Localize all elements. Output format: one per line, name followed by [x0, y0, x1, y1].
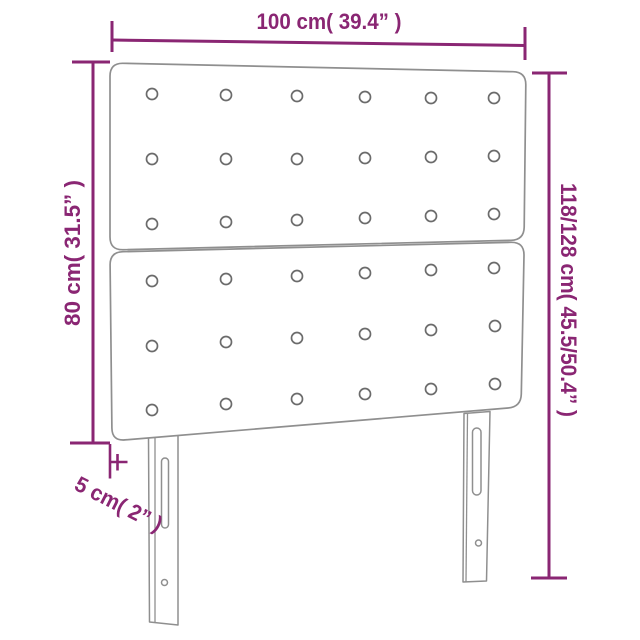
- tufting-button: [490, 379, 501, 390]
- panel-height-dimension: 80 cm( 31.5” ): [60, 62, 110, 443]
- total-height-dimension-label: 118/128 cm( 45.5/50.4” ): [556, 183, 581, 417]
- tufting-button: [360, 389, 371, 400]
- tufting-button: [489, 93, 500, 104]
- tufting-button: [147, 341, 158, 352]
- tufting-button: [221, 399, 232, 410]
- right-leg: [463, 412, 490, 583]
- tufting-button: [292, 271, 303, 282]
- tufting-button: [489, 209, 500, 220]
- headboard-dimension-diagram: 100 cm( 39.4” ) 80 cm( 31.5” ) 118/128 c…: [0, 0, 640, 640]
- tufting-button: [360, 213, 371, 224]
- tufting-button: [221, 217, 232, 228]
- tufting-button: [221, 337, 232, 348]
- tufting-button: [292, 91, 303, 102]
- headboard: [110, 63, 526, 625]
- tufting-button: [292, 154, 303, 165]
- tufting-button: [147, 276, 158, 287]
- tufting-button: [360, 329, 371, 340]
- tufting-button: [360, 92, 371, 103]
- tufting-button: [292, 333, 303, 344]
- lower-panel: [110, 242, 524, 440]
- tufting-button: [426, 265, 437, 276]
- width-dimension: 100 cm( 39.4” ): [112, 9, 525, 60]
- tufting-button: [426, 325, 437, 336]
- tufting-button: [221, 274, 232, 285]
- right-leg-slot: [473, 428, 482, 495]
- tufting-button: [426, 152, 437, 163]
- tufting-button: [292, 394, 303, 405]
- tufting-button: [147, 405, 158, 416]
- width-dimension-label: 100 cm( 39.4” ): [257, 9, 402, 34]
- tufting-button: [221, 90, 232, 101]
- tufting-button: [490, 321, 501, 332]
- upper-panel: [110, 63, 526, 249]
- tufting-button: [292, 215, 303, 226]
- tufting-button: [221, 154, 232, 165]
- diagram-container: 100 cm( 39.4” ) 80 cm( 31.5” ) 118/128 c…: [0, 0, 640, 640]
- tufting-button: [489, 151, 500, 162]
- right-leg-hole: [476, 540, 482, 546]
- tufting-button: [426, 211, 437, 222]
- left-leg-hole: [162, 580, 168, 586]
- tufting-button: [489, 263, 500, 274]
- panel-height-dimension-label: 80 cm( 31.5” ): [60, 180, 85, 326]
- tufting-button: [426, 93, 437, 104]
- tufting-button: [147, 154, 158, 165]
- width-dimension-line: [112, 40, 525, 46]
- tufting-button: [360, 268, 371, 279]
- tufting-button: [426, 384, 437, 395]
- tufting-button: [147, 219, 158, 230]
- tufting-button: [147, 89, 158, 100]
- total-height-dimension: 118/128 cm( 45.5/50.4” ): [531, 73, 581, 578]
- tufting-button: [360, 153, 371, 164]
